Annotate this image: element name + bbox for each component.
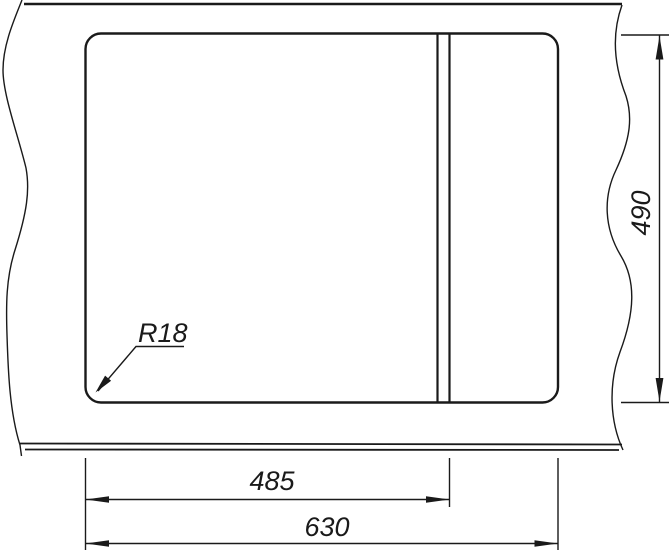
left-break-line	[3, 0, 28, 456]
dimension-width-to-divider: 485	[86, 458, 450, 550]
dimension-overall-width: 630	[86, 458, 559, 550]
dimension-label-485: 485	[249, 466, 295, 496]
arrow-485-right	[426, 496, 450, 503]
arrow-490-bottom	[656, 378, 664, 402]
radius-leader-line	[98, 347, 184, 392]
radius-callout: R18	[96, 318, 188, 393]
arrow-485-left	[86, 496, 110, 503]
arrow-630-left	[86, 540, 110, 547]
cutout-dimension-drawing: R18 485 630 490	[0, 0, 672, 552]
dimension-label-630: 630	[304, 512, 349, 542]
arrow-630-right	[535, 540, 559, 547]
countertop-bottom-edge-inner	[25, 450, 619, 451]
dimension-depth: 490	[621, 35, 669, 403]
countertop-bottom-edge-outer	[20, 444, 622, 445]
dimension-label-490: 490	[626, 190, 656, 235]
radius-label: R18	[138, 318, 188, 348]
technical-drawing-canvas: R18 485 630 490	[0, 0, 672, 552]
arrow-490-top	[656, 36, 664, 60]
